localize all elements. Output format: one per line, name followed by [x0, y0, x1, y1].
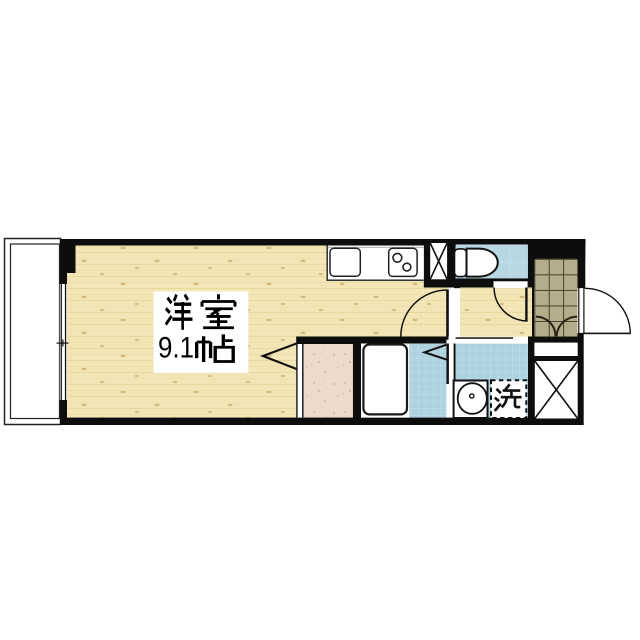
svg-text:9.1: 9.1: [158, 332, 194, 365]
